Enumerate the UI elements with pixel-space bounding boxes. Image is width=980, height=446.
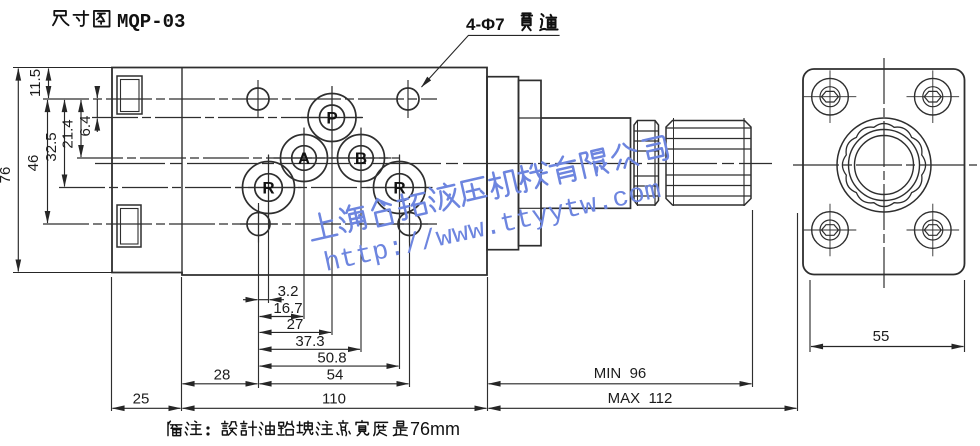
svg-text:55: 55 (873, 328, 890, 345)
svg-text:50.8: 50.8 (317, 350, 346, 367)
svg-text:MAX 112: MAX 112 (608, 390, 673, 407)
svg-text:6.4: 6.4 (77, 116, 94, 137)
svg-text:37.3: 37.3 (295, 333, 324, 350)
svg-text:21.4: 21.4 (60, 119, 77, 148)
svg-text:B: B (355, 149, 367, 168)
svg-text:R: R (393, 179, 405, 198)
svg-text:3.2: 3.2 (278, 283, 299, 300)
svg-text:28: 28 (214, 367, 231, 384)
svg-text:27: 27 (287, 316, 304, 333)
svg-text:MQP-03: MQP-03 (117, 11, 185, 33)
svg-text:76: 76 (0, 167, 14, 184)
svg-text:4-Φ7: 4-Φ7 (466, 15, 505, 34)
svg-text:11.5: 11.5 (27, 69, 44, 97)
svg-text:MIN 96: MIN 96 (594, 365, 647, 382)
svg-text:54: 54 (327, 367, 344, 384)
svg-text:46: 46 (25, 155, 42, 172)
svg-text:R: R (262, 179, 274, 198)
svg-text:76mm: 76mm (410, 419, 460, 439)
svg-text:16.7: 16.7 (273, 300, 302, 317)
svg-text:32.5: 32.5 (43, 132, 60, 161)
svg-text:P: P (326, 109, 337, 128)
svg-text:110: 110 (322, 391, 346, 408)
svg-text:25: 25 (133, 391, 150, 408)
svg-text:A: A (298, 149, 310, 168)
